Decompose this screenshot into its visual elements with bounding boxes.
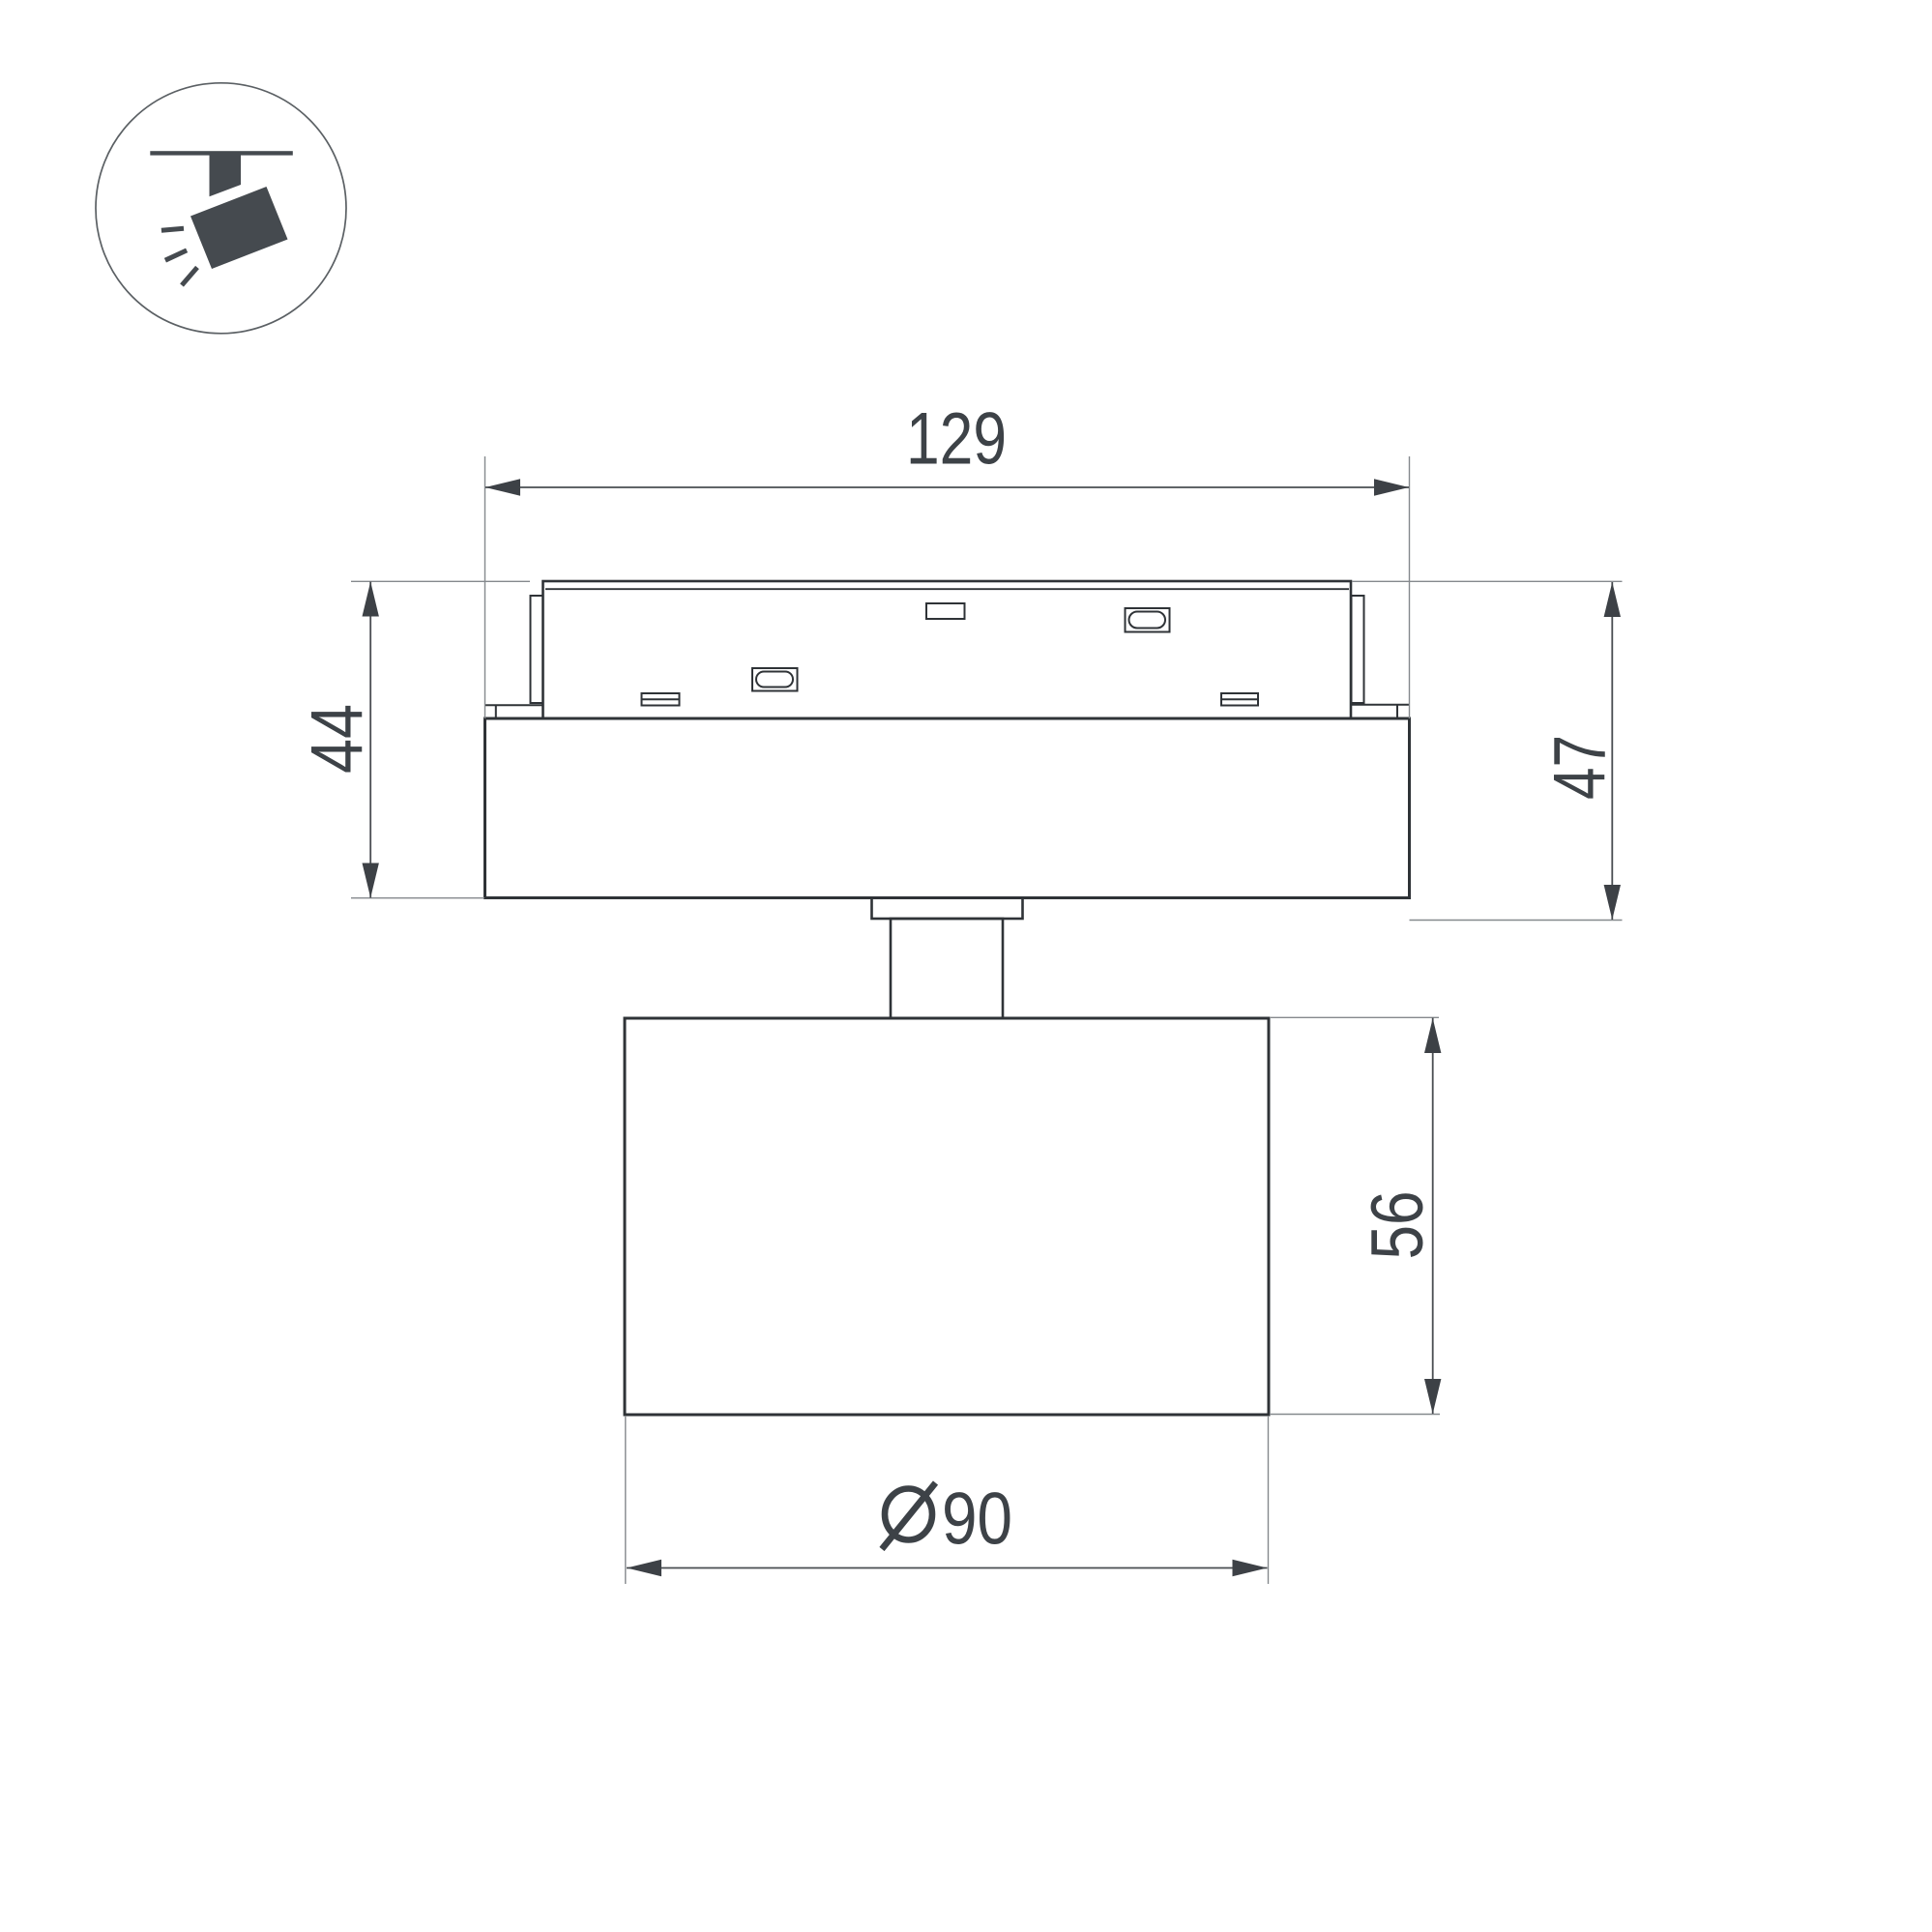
- svg-text:129: 129: [906, 398, 1007, 481]
- svg-text:56: 56: [1357, 1191, 1439, 1260]
- svg-text:90: 90: [942, 1478, 1012, 1561]
- svg-text:44: 44: [297, 704, 379, 774]
- svg-text:47: 47: [1539, 735, 1622, 800]
